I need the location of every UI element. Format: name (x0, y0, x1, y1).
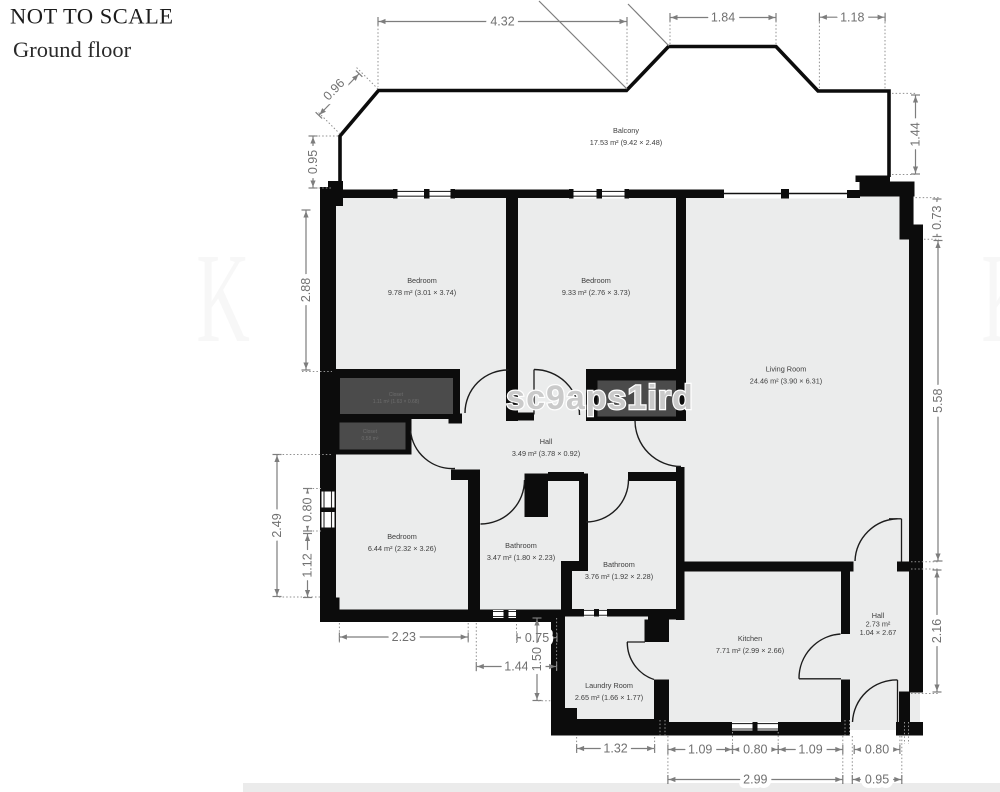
svg-text:1.12: 1.12 (301, 553, 315, 577)
svg-text:7.71 m² (2.99 × 2.66): 7.71 m² (2.99 × 2.66) (716, 646, 784, 655)
svg-text:9.78 m² (3.01 × 3.74): 9.78 m² (3.01 × 3.74) (388, 288, 456, 297)
svg-text:K: K (981, 227, 1000, 369)
svg-text:2.49: 2.49 (270, 513, 284, 537)
svg-text:0.95: 0.95 (865, 773, 889, 787)
svg-text:Hall: Hall (540, 437, 553, 446)
svg-text:NOT TO SCALE: NOT TO SCALE (10, 4, 174, 29)
svg-text:9.33 m² (2.76 × 3.73): 9.33 m² (2.76 × 3.73) (562, 288, 630, 297)
svg-text:1.18: 1.18 (840, 10, 864, 24)
svg-text:2.23: 2.23 (392, 630, 416, 644)
svg-text:Closet: Closet (389, 392, 404, 398)
svg-text:1.84: 1.84 (711, 11, 735, 25)
svg-text:sc9aps1ird: sc9aps1ird (506, 379, 694, 417)
svg-text:1.04 × 2.67: 1.04 × 2.67 (860, 628, 897, 637)
svg-text:Bathroom: Bathroom (505, 541, 537, 550)
svg-text:Closet: Closet (363, 429, 378, 435)
svg-text:2.88: 2.88 (299, 278, 313, 302)
svg-text:Balcony: Balcony (613, 126, 639, 135)
svg-text:1.11 m² (1.63 × 0.68): 1.11 m² (1.63 × 0.68) (373, 399, 420, 405)
svg-text:1.50: 1.50 (530, 647, 544, 671)
svg-text:3.49 m² (3.78 × 0.92): 3.49 m² (3.78 × 0.92) (512, 449, 580, 458)
svg-text:2.16: 2.16 (930, 619, 944, 643)
svg-text:1.44: 1.44 (909, 122, 923, 146)
svg-text:1.32: 1.32 (603, 742, 627, 756)
svg-text:0.80: 0.80 (301, 498, 315, 522)
svg-text:0.80: 0.80 (865, 743, 889, 757)
svg-text:Bedroom: Bedroom (407, 276, 437, 285)
svg-text:0.73: 0.73 (930, 206, 944, 230)
svg-text:6.44 m² (2.32 × 3.26): 6.44 m² (2.32 × 3.26) (368, 544, 436, 553)
svg-text:17.53 m² (9.42 × 2.48): 17.53 m² (9.42 × 2.48) (590, 138, 662, 147)
svg-text:0.95: 0.95 (306, 150, 320, 174)
svg-text:24.46 m² (3.90 × 6.31): 24.46 m² (3.90 × 6.31) (750, 376, 822, 385)
svg-text:Ground floor: Ground floor (13, 37, 132, 62)
svg-text:2.65 m² (1.66 × 1.77): 2.65 m² (1.66 × 1.77) (575, 693, 643, 702)
svg-text:1.44: 1.44 (504, 660, 528, 674)
svg-text:1.09: 1.09 (688, 743, 712, 757)
svg-text:Kitchen: Kitchen (738, 634, 762, 643)
svg-text:Bedroom: Bedroom (581, 276, 611, 285)
svg-text:4.32: 4.32 (490, 15, 514, 29)
svg-text:2.99: 2.99 (743, 773, 767, 787)
svg-text:0.80: 0.80 (743, 743, 767, 757)
svg-text:3.47 m² (1.80 × 2.23): 3.47 m² (1.80 × 2.23) (487, 553, 555, 562)
svg-text:Laundry Room: Laundry Room (585, 681, 633, 690)
svg-text:Living Room: Living Room (766, 365, 807, 374)
svg-text:1.09: 1.09 (798, 743, 822, 757)
svg-text:Bathroom: Bathroom (603, 560, 635, 569)
svg-text:3.76 m² (1.92 × 2.28): 3.76 m² (1.92 × 2.28) (585, 572, 653, 581)
svg-text:5.58: 5.58 (931, 389, 945, 413)
svg-text:Bedroom: Bedroom (387, 532, 417, 541)
svg-text:0.58 m²: 0.58 m² (362, 436, 379, 442)
svg-text:K: K (196, 227, 250, 369)
